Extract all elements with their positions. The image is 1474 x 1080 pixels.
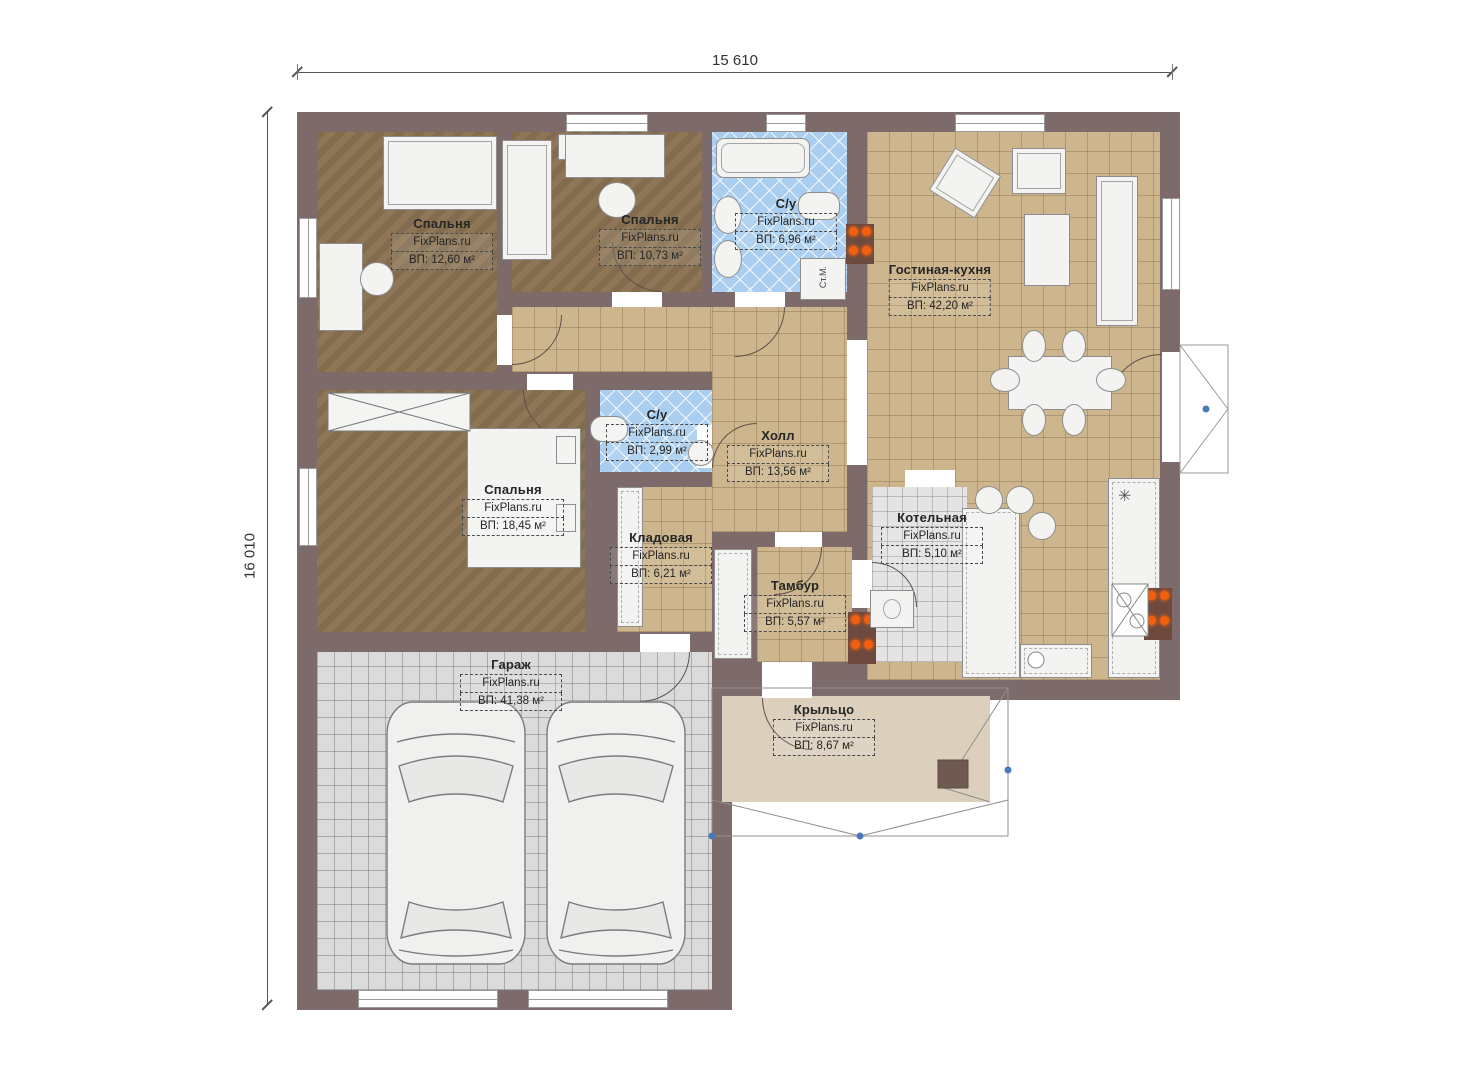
coffee-table-icon [1024, 214, 1070, 286]
door-opening-bedroom-1 [497, 315, 512, 365]
watermark-label: FixPlans.ru [460, 674, 562, 693]
watermark-label: FixPlans.ru [599, 229, 701, 248]
room-label-tambour: Тамбур FixPlans.ru ВП: 5,57 м² [744, 578, 846, 632]
room-name: Кладовая [629, 530, 693, 545]
door-opening-bathroom-1 [735, 292, 785, 307]
bar-stool-icon [1006, 486, 1034, 514]
desk-icon [319, 243, 363, 331]
room-name: С/у [647, 407, 668, 422]
garage-door-1 [358, 990, 498, 1008]
watermark-label: FixPlans.ru [744, 595, 846, 614]
room-name: Холл [761, 428, 794, 443]
dimension-width-label: 15 610 [708, 52, 762, 69]
room-label-bedroom-1: Спальня FixPlans.ru ВП: 12,60 м² [391, 216, 493, 270]
dining-chair-icon [1062, 330, 1086, 362]
opening-hall-living [847, 340, 867, 465]
dimension-extension [297, 64, 298, 80]
watermark-label: FixPlans.ru [881, 527, 983, 546]
pillow-icon [556, 436, 576, 464]
area-label: ВП: 13,56 м² [727, 464, 829, 482]
dimension-line-left [267, 112, 268, 1005]
dining-chair-icon [990, 368, 1020, 392]
area-label: ВП: 5,10 м² [881, 546, 983, 564]
garage-door-2 [528, 990, 668, 1008]
room-name: Тамбур [771, 578, 819, 593]
room-label-bathroom-2: С/у FixPlans.ru ВП: 2,99 м² [606, 407, 708, 461]
room-name: Гостиная-кухня [889, 262, 991, 277]
area-label: ВП: 8,67 м² [773, 738, 875, 756]
area-label: ВП: 6,96 м² [735, 232, 837, 250]
kitchen-counter-icon [1108, 478, 1160, 678]
area-label: ВП: 18,45 м² [462, 518, 564, 536]
room-name: Крыльцо [794, 702, 855, 717]
room-label-bathroom-1: С/у FixPlans.ru ВП: 6,96 м² [735, 196, 837, 250]
watermark-label: FixPlans.ru [606, 424, 708, 443]
side-steps-icon [1180, 345, 1228, 473]
area-label: ВП: 10,73 м² [599, 248, 701, 266]
watermark-label: FixPlans.ru [727, 445, 829, 464]
watermark-label: FixPlans.ru [735, 213, 837, 232]
room-label-garage: Гараж FixPlans.ru ВП: 41,38 м² [460, 657, 562, 711]
area-label: ВП: 6,21 м² [610, 566, 712, 584]
opening-boiler-kitchen [905, 470, 955, 487]
room-name: Гараж [491, 657, 531, 672]
dimension-height-label: 16 010 [242, 529, 259, 583]
washing-machine-label: Ст.М. [818, 266, 828, 288]
fridge-icon: ✳ [1118, 486, 1131, 506]
stove-burners-icon [1144, 588, 1172, 640]
oven-icon [1020, 644, 1092, 678]
sofa-icon [1096, 176, 1138, 326]
room-label-storage: Кладовая FixPlans.ru ВП: 6,21 м² [610, 530, 712, 584]
armchair-icon [1012, 148, 1066, 194]
floor-plan-canvas: 15 610 16 010 [0, 0, 1474, 1080]
door-opening-living-side [1162, 352, 1180, 462]
door-opening-boiler [852, 560, 872, 608]
dining-chair-icon [1096, 368, 1126, 392]
dimension-line-top [297, 72, 1172, 73]
area-label: ВП: 41,38 м² [460, 693, 562, 711]
dimension-extension [1172, 64, 1173, 80]
watermark-label: FixPlans.ru [462, 499, 564, 518]
door-opening-bedroom-2 [612, 292, 662, 307]
door-opening-porch [762, 662, 812, 698]
room-label-bedroom-2: Спальня FixPlans.ru ВП: 10,73 м² [599, 212, 701, 266]
door-opening-bedroom-3 [527, 374, 573, 390]
dining-chair-icon [1022, 330, 1046, 362]
area-label: ВП: 5,57 м² [744, 614, 846, 632]
room-name: Спальня [484, 482, 542, 497]
watermark-label: FixPlans.ru [391, 233, 493, 252]
room-name: Спальня [621, 212, 679, 227]
chair-icon [360, 262, 394, 296]
window-left-bedroom-3 [299, 468, 317, 546]
room-name: С/у [776, 196, 797, 211]
room-label-porch: Крыльцо FixPlans.ru ВП: 8,67 м² [773, 702, 875, 756]
watermark-label: FixPlans.ru [773, 719, 875, 738]
room-label-living-kitchen: Гостиная-кухня FixPlans.ru ВП: 42,20 м² [889, 262, 991, 316]
window-top-bedroom-2 [566, 114, 648, 132]
room-name: Спальня [413, 216, 471, 231]
dining-chair-icon [1062, 404, 1086, 436]
area-label: ВП: 42,20 м² [889, 298, 991, 316]
room-label-bedroom-3: Спальня FixPlans.ru ВП: 18,45 м² [462, 482, 564, 536]
room-label-boiler-room: Котельная FixPlans.ru ВП: 5,10 м² [881, 510, 983, 564]
bed-icon [383, 136, 497, 210]
door-opening-tambour [775, 532, 822, 547]
window-left-bedroom-1 [299, 218, 317, 298]
bathtub-icon [716, 138, 810, 178]
desk-icon [565, 134, 665, 178]
floor-hall [712, 307, 847, 532]
area-label: ВП: 2,99 м² [606, 443, 708, 461]
window-top-living [955, 114, 1045, 132]
window-right-living [1162, 198, 1180, 290]
window-top-bathroom-1 [766, 114, 806, 132]
room-label-hall: Холл FixPlans.ru ВП: 13,56 м² [727, 428, 829, 482]
door-opening-garage [640, 634, 690, 652]
boiler-icon [870, 590, 914, 628]
bar-stool-icon [1028, 512, 1056, 540]
bed-icon [502, 140, 552, 260]
watermark-label: FixPlans.ru [610, 547, 712, 566]
dining-chair-icon [1022, 404, 1046, 436]
area-label: ВП: 12,60 м² [391, 252, 493, 270]
watermark-label: FixPlans.ru [889, 279, 991, 298]
stove-burners-icon [846, 224, 874, 264]
room-name: Котельная [897, 510, 967, 525]
